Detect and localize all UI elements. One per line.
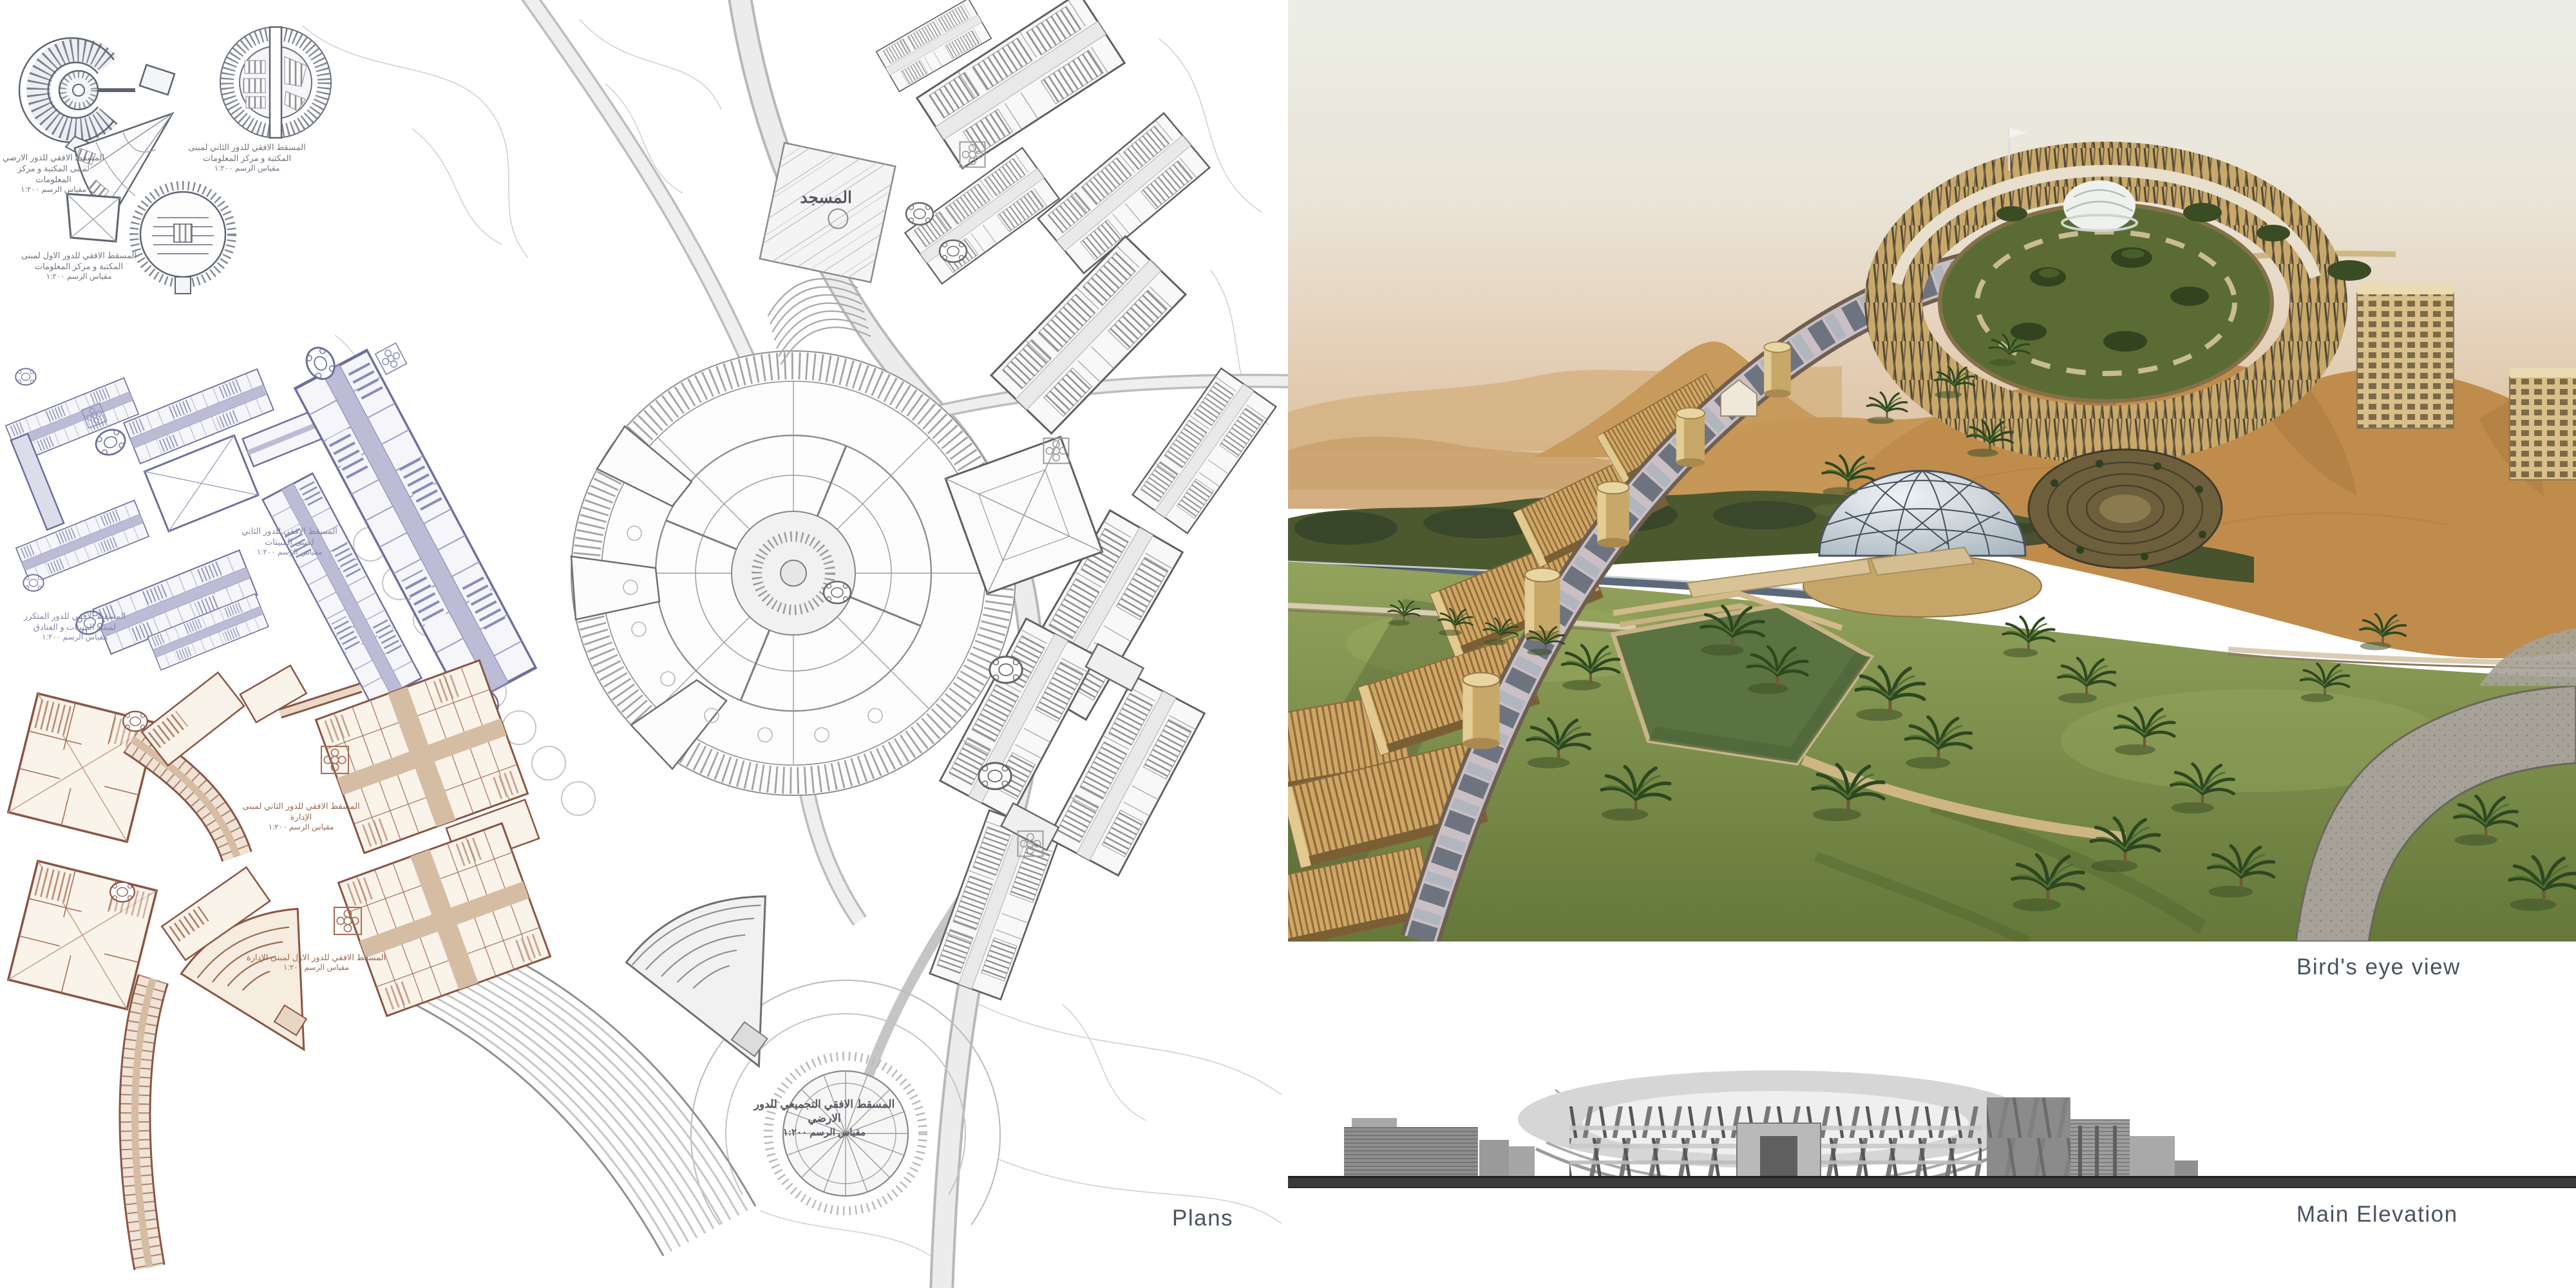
plans-sheet-drawing xyxy=(0,0,1288,1288)
caption-line: المسقط الافقي التجميعي للدور الارضي xyxy=(754,1098,895,1124)
caption-scale: مقياس الرسم ١:٢٠٠ xyxy=(750,1126,898,1139)
caption-line: المسقط الافقي للدور المتكرر لمبنى المبيت… xyxy=(24,611,126,632)
caption-scale: مقياس الرسم ١:٢٠٠ xyxy=(246,963,386,973)
birds-eye-rendering xyxy=(1288,0,2576,942)
caption-admin-first: المسقط الافقي للدور الاول لمبنى الإدارة … xyxy=(246,952,386,973)
presentation-board: المسقط الافقي للدور الارضي لمبنى المكتبة… xyxy=(0,0,2576,1288)
birds-eye-section-label: Bird's eye view xyxy=(2297,954,2461,980)
auditorium-fan xyxy=(611,871,797,1066)
mosque-label: المسجد xyxy=(800,188,852,207)
elevation-ground-line xyxy=(1288,1176,2576,1188)
caption-line: المسقط الافقي للدور الارضي لمبنى المكتبة… xyxy=(3,153,104,184)
elevation-right-wing xyxy=(1987,1097,2198,1177)
main-elevation-section-label: Main Elevation xyxy=(2297,1202,2458,1227)
elevation-pylon-hall xyxy=(1569,1106,1982,1177)
caption-line: المسقط الافقي للدور الاول لمبنى المكتبة … xyxy=(21,251,137,271)
caption-library-first: المسقط الافقي للدور الاول لمبنى المكتبة … xyxy=(19,250,138,282)
caption-line: المسقط الافقي للدور الاول لمبنى الإدارة xyxy=(247,952,386,962)
caption-hostel-second: المسقط الافقي للدور الثاني لمبنى المبيتا… xyxy=(240,526,339,558)
main-elevation-drawing xyxy=(1343,1064,2199,1179)
caption-line: المسقط الافقي للدور الثاني لمبنى الإدارة xyxy=(242,801,359,822)
mosque-courtyard xyxy=(760,143,895,283)
caption-scale: مقياس الرسم ١:٢٠٠ xyxy=(3,185,104,195)
caption-library-ground: المسقط الافقي للدور الارضي لمبنى المكتبة… xyxy=(3,152,104,195)
caption-master-ground: المسقط الافقي التجميعي للدور الارضي مقيا… xyxy=(750,1097,898,1139)
admin-plan-second xyxy=(8,660,539,867)
caption-scale: مقياس الرسم ١:٢٠٠ xyxy=(184,164,310,174)
caption-scale: مقياس الرسم ١:٢٠٠ xyxy=(232,822,370,833)
caption-scale: مقياس الرسم ١:٢٠٠ xyxy=(19,272,138,282)
plans-section-label: Plans xyxy=(1172,1206,1233,1231)
central-complex xyxy=(571,351,1016,795)
caption-library-second: المسقط الافقي للدور الثاني لمبنى المكتبة… xyxy=(184,142,310,174)
caption-hostel-typical: المسقط الافقي للدور المتكرر لمبنى المبيت… xyxy=(23,611,126,643)
caption-line: المسقط الافقي للدور الثاني لمبنى المبيتا… xyxy=(241,526,337,547)
caption-scale: مقياس الرسم ١:٢٠٠ xyxy=(23,632,126,643)
admin-plan-first xyxy=(8,823,551,1267)
sunken-garden-bowl xyxy=(2029,450,2222,568)
caption-scale: مقياس الرسم ١:٢٠٠ xyxy=(240,547,339,558)
caption-admin-second: المسقط الافقي للدور الثاني لمبنى الإدارة… xyxy=(232,800,370,833)
caption-line: المسقط الافقي للدور الثاني لمبنى المكتبة… xyxy=(188,142,305,163)
